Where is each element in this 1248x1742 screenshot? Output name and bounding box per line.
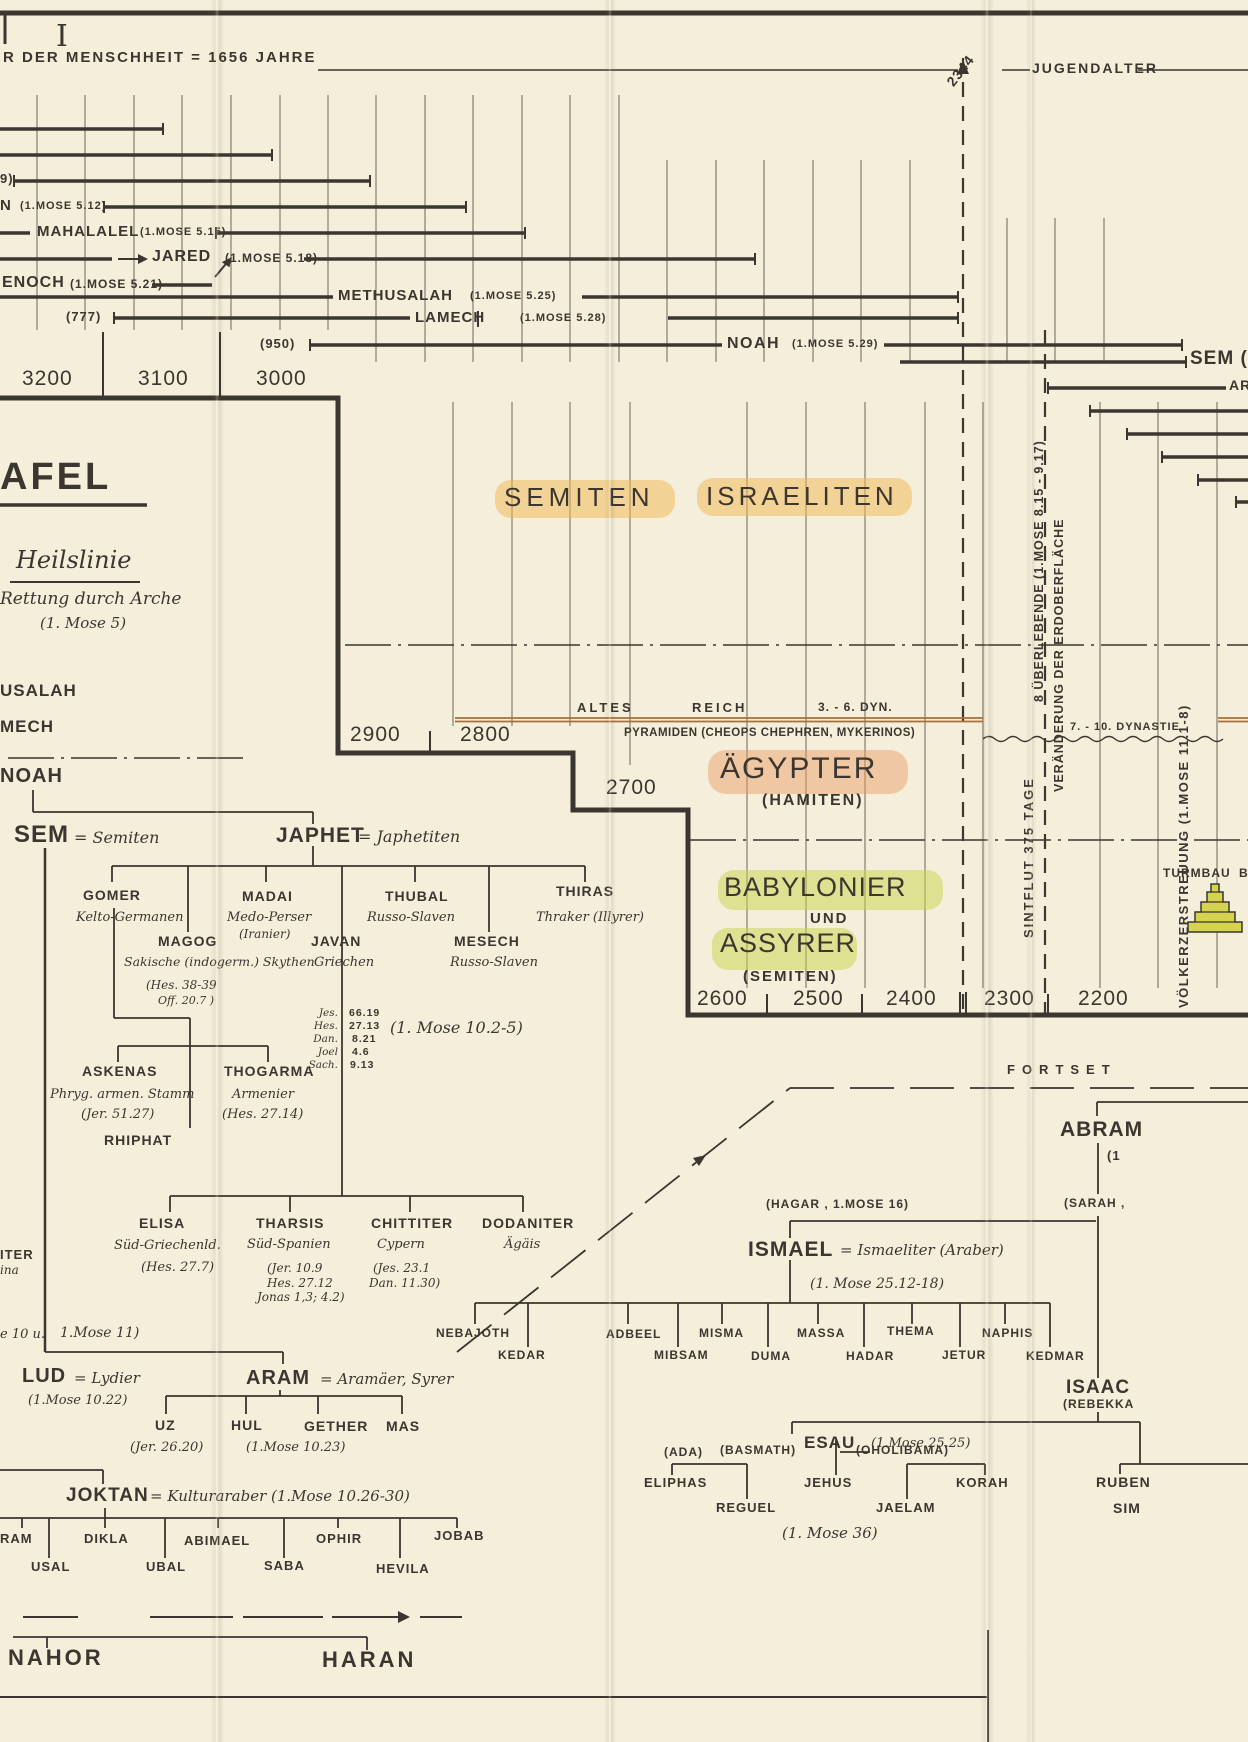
age-of-mankind-heading: R DER MENSCHHEIT = 1656 JAHRE bbox=[3, 50, 316, 65]
tree-elisa: ELISA bbox=[139, 1216, 185, 1230]
tree-thubal: THUBAL bbox=[385, 889, 449, 903]
tree-tharsis-ref1: (Jer. 10.9 bbox=[267, 1262, 322, 1274]
tree-javan-desc: Griechen bbox=[314, 956, 374, 969]
tree-basmath: (BASMATH) bbox=[720, 1444, 796, 1456]
tree-isaac: ISAAC bbox=[1066, 1378, 1130, 1397]
tree-jobab: JOBAB bbox=[434, 1529, 485, 1542]
egypt-dyn-7-10: 7. - 10. DYNASTIE bbox=[1070, 722, 1180, 733]
region-babylonier: BABYLONIER bbox=[724, 874, 907, 901]
tree-abram: ABRAM bbox=[1060, 1119, 1143, 1140]
age-noah: (950) bbox=[260, 337, 295, 350]
tree-misma: MISMA bbox=[699, 1327, 744, 1339]
javan-ref-num-5: 9.13 bbox=[350, 1060, 374, 1071]
tree-abimael: ABIMAEL bbox=[184, 1534, 250, 1547]
tree-joktan-desc: = Kulturaraber (1.Mose 10.26-30) bbox=[150, 1489, 410, 1504]
turmbau-partial: B bbox=[1239, 867, 1248, 879]
tree-madai: MADAI bbox=[242, 889, 293, 903]
tree-kedmar: KEDMAR bbox=[1026, 1350, 1085, 1362]
date-2600: 2600 bbox=[697, 988, 748, 1009]
javan-ref-num-4: 4.6 bbox=[352, 1047, 370, 1058]
tree-tharsis-ref3: Jonas 1,3; 4.2) bbox=[257, 1291, 345, 1303]
region-semiten-sub: (SEMITEN) bbox=[743, 969, 838, 984]
edge-methusalah: USALAH bbox=[0, 682, 77, 699]
tree-simeon-partial: SIM bbox=[1113, 1501, 1141, 1515]
patriarch-jared: JARED bbox=[152, 249, 211, 265]
legend-ref: (1. Mose 5) bbox=[40, 616, 126, 631]
date-2900: 2900 bbox=[350, 724, 401, 745]
tree-gether: GETHER bbox=[304, 1419, 368, 1433]
javan-ref-num-1: 66.19 bbox=[349, 1008, 380, 1019]
legend-rettung: Rettung durch Arche bbox=[0, 591, 181, 608]
fortsetzung-label: FORTSET bbox=[1007, 1063, 1117, 1076]
tree-madai-desc: Medo-Perser bbox=[227, 911, 311, 924]
ref-noah: (1.MOSE 5.29) bbox=[792, 339, 878, 350]
patriarch-kenan-partial: N bbox=[0, 198, 12, 213]
tree-adbeel: ADBEEL bbox=[606, 1328, 661, 1340]
tree-mesech: MESECH bbox=[454, 934, 520, 948]
tree-hevila: HEVILA bbox=[376, 1562, 430, 1575]
edge-ref-mose11: 1.Mose 11) bbox=[60, 1326, 139, 1340]
javan-ref-num-2: 27.13 bbox=[349, 1021, 380, 1032]
ref-methusalah: (1.MOSE 5.25) bbox=[470, 291, 556, 302]
flood-survivors: 8 ÜBERLEBENDE (1.MOSE 8.15 - 9.17) bbox=[1033, 440, 1046, 702]
region-assyrer: ASSYRER bbox=[720, 930, 856, 957]
tree-saba: SABA bbox=[264, 1559, 305, 1572]
patriarch-lamech: LAMECH bbox=[415, 310, 485, 325]
tree-ismael-ref: (1. Mose 25.12-18) bbox=[810, 1277, 944, 1291]
tree-thogarma-ref: (Hes. 27.14) bbox=[222, 1108, 303, 1121]
javan-ref-book-1: Jes. bbox=[302, 1008, 338, 1019]
tree-noah: NOAH bbox=[0, 766, 63, 786]
flood-surface-change: VERÄNDERUNG DER ERDOBERFLÄCHE bbox=[1053, 519, 1066, 792]
tree-elisa-ref: (Hes. 27.7) bbox=[141, 1261, 214, 1274]
tree-hagar-ref: (HAGAR , 1.MOSE 16) bbox=[766, 1198, 909, 1210]
turmbau-label: TURMBAU bbox=[1163, 867, 1231, 879]
tree-korah: KORAH bbox=[956, 1476, 1009, 1489]
tree-esau-mose36: (1. Mose 36) bbox=[782, 1526, 878, 1541]
tree-hul: HUL bbox=[231, 1418, 263, 1432]
tree-askenas-desc: Phryg. armen. Stamm bbox=[50, 1088, 194, 1101]
javan-ref-book-2: Hes. bbox=[302, 1021, 338, 1032]
region-israeliten: ISRAELITEN bbox=[706, 483, 898, 509]
tree-ismael: ISMAEL bbox=[748, 1239, 833, 1260]
tree-duma: DUMA bbox=[751, 1350, 791, 1362]
date-2800: 2800 bbox=[460, 724, 511, 745]
region-hamiten: (HAMITEN) bbox=[762, 793, 864, 809]
tree-madai-desc2: (Iranier) bbox=[239, 928, 290, 940]
ref-jared: (1.MOSE 5.18) bbox=[225, 252, 318, 264]
tree-massa: MASSA bbox=[797, 1327, 845, 1339]
tree-hadar: HADAR bbox=[846, 1350, 894, 1362]
date-2200: 2200 bbox=[1078, 988, 1129, 1009]
date-2700: 2700 bbox=[606, 777, 657, 798]
egypt-altes: ALTES bbox=[577, 701, 634, 714]
edge-lamech: MECH bbox=[0, 718, 54, 735]
edge-partial-ina: ina bbox=[0, 1264, 19, 1276]
tree-thiras: THIRAS bbox=[556, 884, 614, 898]
tree-rhiphat: RHIPHAT bbox=[104, 1133, 172, 1147]
date-3200: 3200 bbox=[22, 368, 73, 389]
tree-lud-desc: = Lydier bbox=[74, 1371, 140, 1386]
tree-aram-ref: (1.Mose 10.23) bbox=[246, 1441, 345, 1454]
tree-thubal-desc: Russo-Slaven bbox=[367, 911, 455, 924]
tree-gomer: GOMER bbox=[83, 888, 141, 902]
age-lamech: (777) bbox=[66, 310, 101, 323]
tree-oholibama: (OHOLIBAMA) bbox=[856, 1444, 949, 1456]
tree-hadoram-partial: RAM bbox=[0, 1532, 33, 1545]
tree-dodaniter-desc: Ägäis bbox=[504, 1238, 540, 1251]
tree-jetur: JETUR bbox=[942, 1349, 986, 1361]
tree-aram-desc: = Aramäer, Syrer bbox=[320, 1372, 453, 1387]
tree-dikla: DIKLA bbox=[84, 1532, 129, 1545]
tree-mibsam: MIBSAM bbox=[654, 1349, 709, 1361]
edge-ref-mose10: e 10 u. bbox=[0, 1328, 45, 1341]
region-aegypter: ÄGYPTER bbox=[720, 754, 877, 784]
tree-tharsis-ref2: Hes. 27.12 bbox=[267, 1277, 333, 1289]
tree-chittiter-ref1: (Jes. 23.1 bbox=[373, 1262, 430, 1274]
plate-numeral: I bbox=[56, 22, 69, 52]
tree-sem: SEM bbox=[14, 823, 69, 847]
tree-nebajoth: NEBAJOTH bbox=[436, 1327, 510, 1339]
javan-ref-num-3: 8.21 bbox=[352, 1034, 376, 1045]
tree-tharsis: THARSIS bbox=[256, 1216, 324, 1230]
tree-magog-ref2: Off. 20.7 ) bbox=[158, 995, 214, 1006]
tree-tharsis-desc: Süd-Spanien bbox=[247, 1238, 331, 1251]
date-2300: 2300 bbox=[984, 988, 1035, 1009]
tree-magog-ref1: (Hes. 38-39 bbox=[146, 979, 217, 991]
date-2400: 2400 bbox=[886, 988, 937, 1009]
tree-reguel: REGUEL bbox=[716, 1501, 776, 1514]
patriarch-noah: NOAH bbox=[727, 336, 780, 352]
jugendalter-label: JUGENDALTER bbox=[1032, 61, 1158, 75]
tree-dodaniter: DODANITER bbox=[482, 1216, 574, 1230]
tree-abram-ref-partial: (1 bbox=[1107, 1149, 1121, 1162]
tree-ismael-desc: = Ismaeliter (Araber) bbox=[840, 1243, 1004, 1258]
tree-naphis: NAPHIS bbox=[982, 1327, 1033, 1339]
patriarch-mahalalel: MAHALALEL bbox=[37, 224, 139, 239]
tree-jehus: JEHUS bbox=[804, 1476, 852, 1489]
tree-nahor: NAHOR bbox=[8, 1647, 104, 1669]
region-und: UND bbox=[810, 911, 849, 926]
flood-sintflut: SINTFLUT 375 TAGE bbox=[1022, 777, 1035, 938]
date-3000: 3000 bbox=[256, 368, 307, 389]
tree-japhet-desc: = Japhetiten bbox=[358, 829, 460, 845]
tree-askenas-ref: (Jer. 51.27) bbox=[81, 1108, 154, 1121]
tree-haran: HARAN bbox=[322, 1649, 416, 1671]
tree-japhet: JAPHET bbox=[276, 825, 365, 846]
tree-uz: UZ bbox=[155, 1418, 176, 1432]
patriarch-sem-bar: SEM ( bbox=[1190, 349, 1248, 368]
egypt-dyn: 3. - 6. DYN. bbox=[818, 701, 893, 713]
tree-gomer-desc: Kelto-Germanen bbox=[76, 911, 183, 924]
tree-lud: LUD bbox=[22, 1366, 66, 1386]
tree-javan: JAVAN bbox=[311, 934, 361, 948]
date-2500: 2500 bbox=[793, 988, 844, 1009]
tree-sem-desc: = Semiten bbox=[74, 830, 159, 846]
tree-aram: ARAM bbox=[246, 1368, 310, 1388]
tree-usal: USAL bbox=[31, 1560, 70, 1573]
dispersion-label: VÖLKERZERSTREUUNG (1.MOSE 11.1-8) bbox=[1177, 704, 1190, 1008]
tree-magog: MAGOG bbox=[158, 934, 217, 948]
tree-jaelam: JAELAM bbox=[876, 1501, 935, 1514]
tree-chittiter-desc: Cypern bbox=[377, 1238, 425, 1251]
tree-joktan: JOKTAN bbox=[66, 1486, 149, 1505]
tree-sarah-ref: (SARAH , bbox=[1064, 1197, 1125, 1209]
lifespan-partial: 9) bbox=[0, 172, 14, 185]
tree-esau: ESAU bbox=[804, 1434, 855, 1451]
javan-ref-book-4: Joel bbox=[302, 1047, 338, 1058]
date-3100: 3100 bbox=[138, 368, 189, 389]
tree-ruben: RUBEN bbox=[1096, 1475, 1151, 1489]
patriarch-enoch: ENOCH bbox=[2, 275, 65, 291]
tree-ophir: OPHIR bbox=[316, 1532, 362, 1545]
patriarch-methusalah: METHUSALAH bbox=[338, 288, 453, 303]
tree-thema: THEMA bbox=[887, 1325, 935, 1337]
tree-magog-desc: Sakische (indogerm.) Skythen bbox=[124, 956, 315, 969]
tree-eliphas: ELIPHAS bbox=[644, 1476, 707, 1489]
chart-title-partial: AFEL bbox=[0, 458, 111, 496]
flood-year: 2344 bbox=[944, 52, 977, 88]
tree-elisa-desc: Süd-Griechenld. bbox=[114, 1239, 221, 1252]
voelkertafel-chart: IR DER MENSCHHEIT = 1656 JAHRE2344JUGEND… bbox=[0, 0, 1248, 1742]
tree-lud-ref: (1.Mose 10.22) bbox=[28, 1394, 127, 1407]
region-semiten: SEMITEN bbox=[504, 484, 655, 510]
tree-uz-ref: (Jer. 26.20) bbox=[130, 1441, 203, 1454]
edge-partial-iter: ITER bbox=[0, 1248, 34, 1261]
labels-layer: IR DER MENSCHHEIT = 1656 JAHRE2344JUGEND… bbox=[0, 0, 1248, 1742]
tree-mesech-desc: Russo-Slaven bbox=[450, 956, 538, 969]
ref-kenan: (1.MOSE 5.12) bbox=[20, 201, 106, 212]
tree-thiras-desc: Thraker (Illyrer) bbox=[536, 911, 644, 924]
tree-mas: MAS bbox=[386, 1419, 420, 1433]
tree-ubal: UBAL bbox=[146, 1560, 186, 1573]
javan-ref-book-3: Dan. bbox=[302, 1034, 338, 1045]
tree-chittiter: CHITTITER bbox=[371, 1216, 453, 1230]
ref-mahalalel: (1.MOSE 5.15) bbox=[140, 227, 226, 238]
tree-chittiter-ref2: Dan. 11.30) bbox=[369, 1277, 440, 1289]
ref-enoch: (1.MOSE 5.21) bbox=[70, 278, 163, 290]
tree-ada: (ADA) bbox=[664, 1446, 703, 1458]
tree-kedar: KEDAR bbox=[498, 1349, 546, 1361]
tree-askenas: ASKENAS bbox=[82, 1064, 157, 1078]
patriarch-arpachsad-partial: AR bbox=[1229, 378, 1248, 392]
legend-heilslinie: Heilslinie bbox=[16, 548, 132, 572]
ref-lamech: (1.MOSE 5.28) bbox=[520, 313, 606, 324]
tree-rebekka-ref: (REBEKKA bbox=[1063, 1398, 1134, 1410]
tree-thogarma: THOGARMA bbox=[224, 1064, 314, 1078]
egypt-reich: REICH bbox=[692, 701, 747, 714]
tree-thogarma-desc: Armenier bbox=[232, 1088, 294, 1101]
ref-mose-10-2-5: (1. Mose 10.2-5) bbox=[390, 1020, 523, 1036]
egypt-pyramiden: PYRAMIDEN (CHEOPS CHEPHREN, MYKERINOS) bbox=[624, 728, 915, 740]
